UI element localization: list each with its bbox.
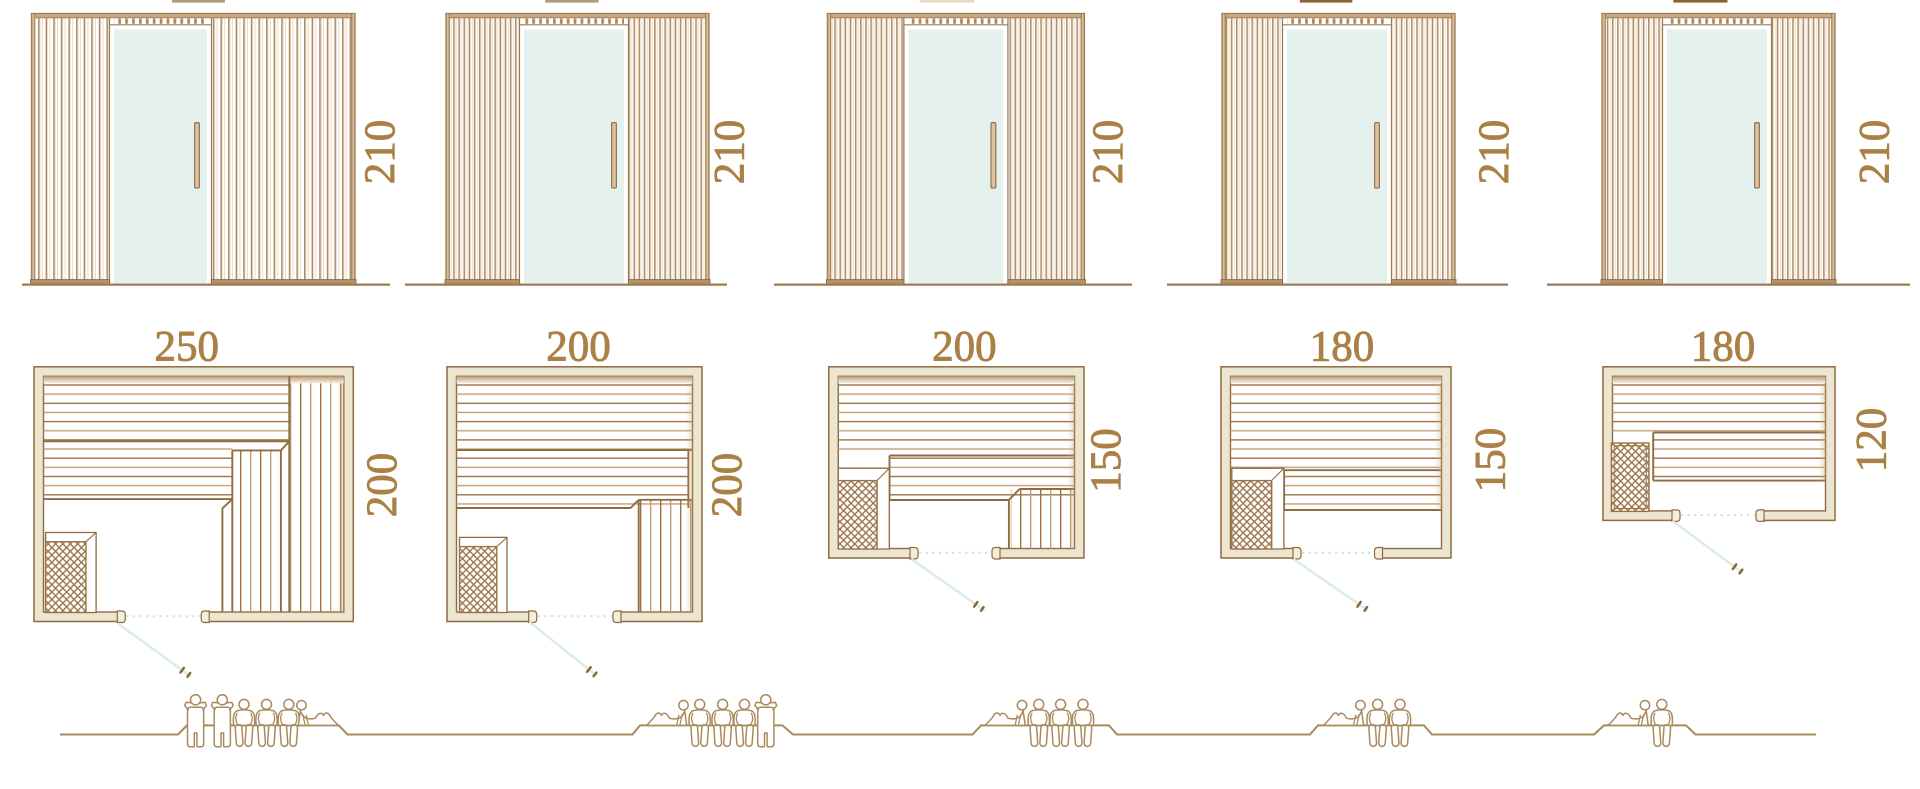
svg-text:150: 150 xyxy=(1083,428,1130,493)
svg-text:210: 210 xyxy=(1852,120,1899,185)
svg-text:150: 150 xyxy=(1468,428,1515,493)
svg-text:180: 180 xyxy=(1310,324,1375,371)
svg-text:210: 210 xyxy=(707,120,754,185)
svg-text:180: 180 xyxy=(1691,324,1756,371)
svg-text:210: 210 xyxy=(1085,120,1132,185)
svg-text:200: 200 xyxy=(359,453,406,518)
svg-text:200: 200 xyxy=(932,324,997,371)
svg-text:250: 250 xyxy=(154,324,219,371)
svg-text:210: 210 xyxy=(357,120,404,185)
svg-text:200: 200 xyxy=(546,324,611,371)
svg-text:120: 120 xyxy=(1848,408,1895,473)
svg-text:200: 200 xyxy=(704,453,751,518)
svg-text:210: 210 xyxy=(1471,120,1518,185)
